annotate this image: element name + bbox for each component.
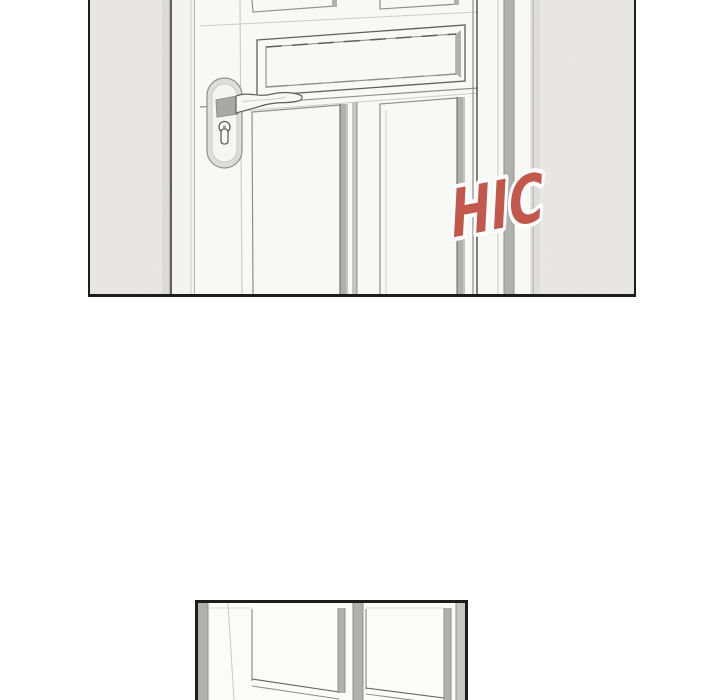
door-top-right-edge	[456, 603, 465, 700]
door-scene-art: HIC	[90, 0, 634, 294]
wall-right	[533, 0, 634, 294]
wall-left	[90, 0, 171, 294]
door-jamb	[504, 0, 531, 294]
panel-door-scene: HIC	[88, 0, 636, 297]
comic-page: HIC	[0, 0, 720, 700]
panel-door-top-scene	[195, 600, 468, 700]
keyhole	[219, 122, 230, 145]
door-top-art	[198, 603, 465, 700]
door-top-background	[198, 603, 465, 700]
door-frame-left	[172, 0, 195, 294]
door-right-edge	[473, 0, 498, 294]
door-top-center-stile	[353, 603, 363, 700]
